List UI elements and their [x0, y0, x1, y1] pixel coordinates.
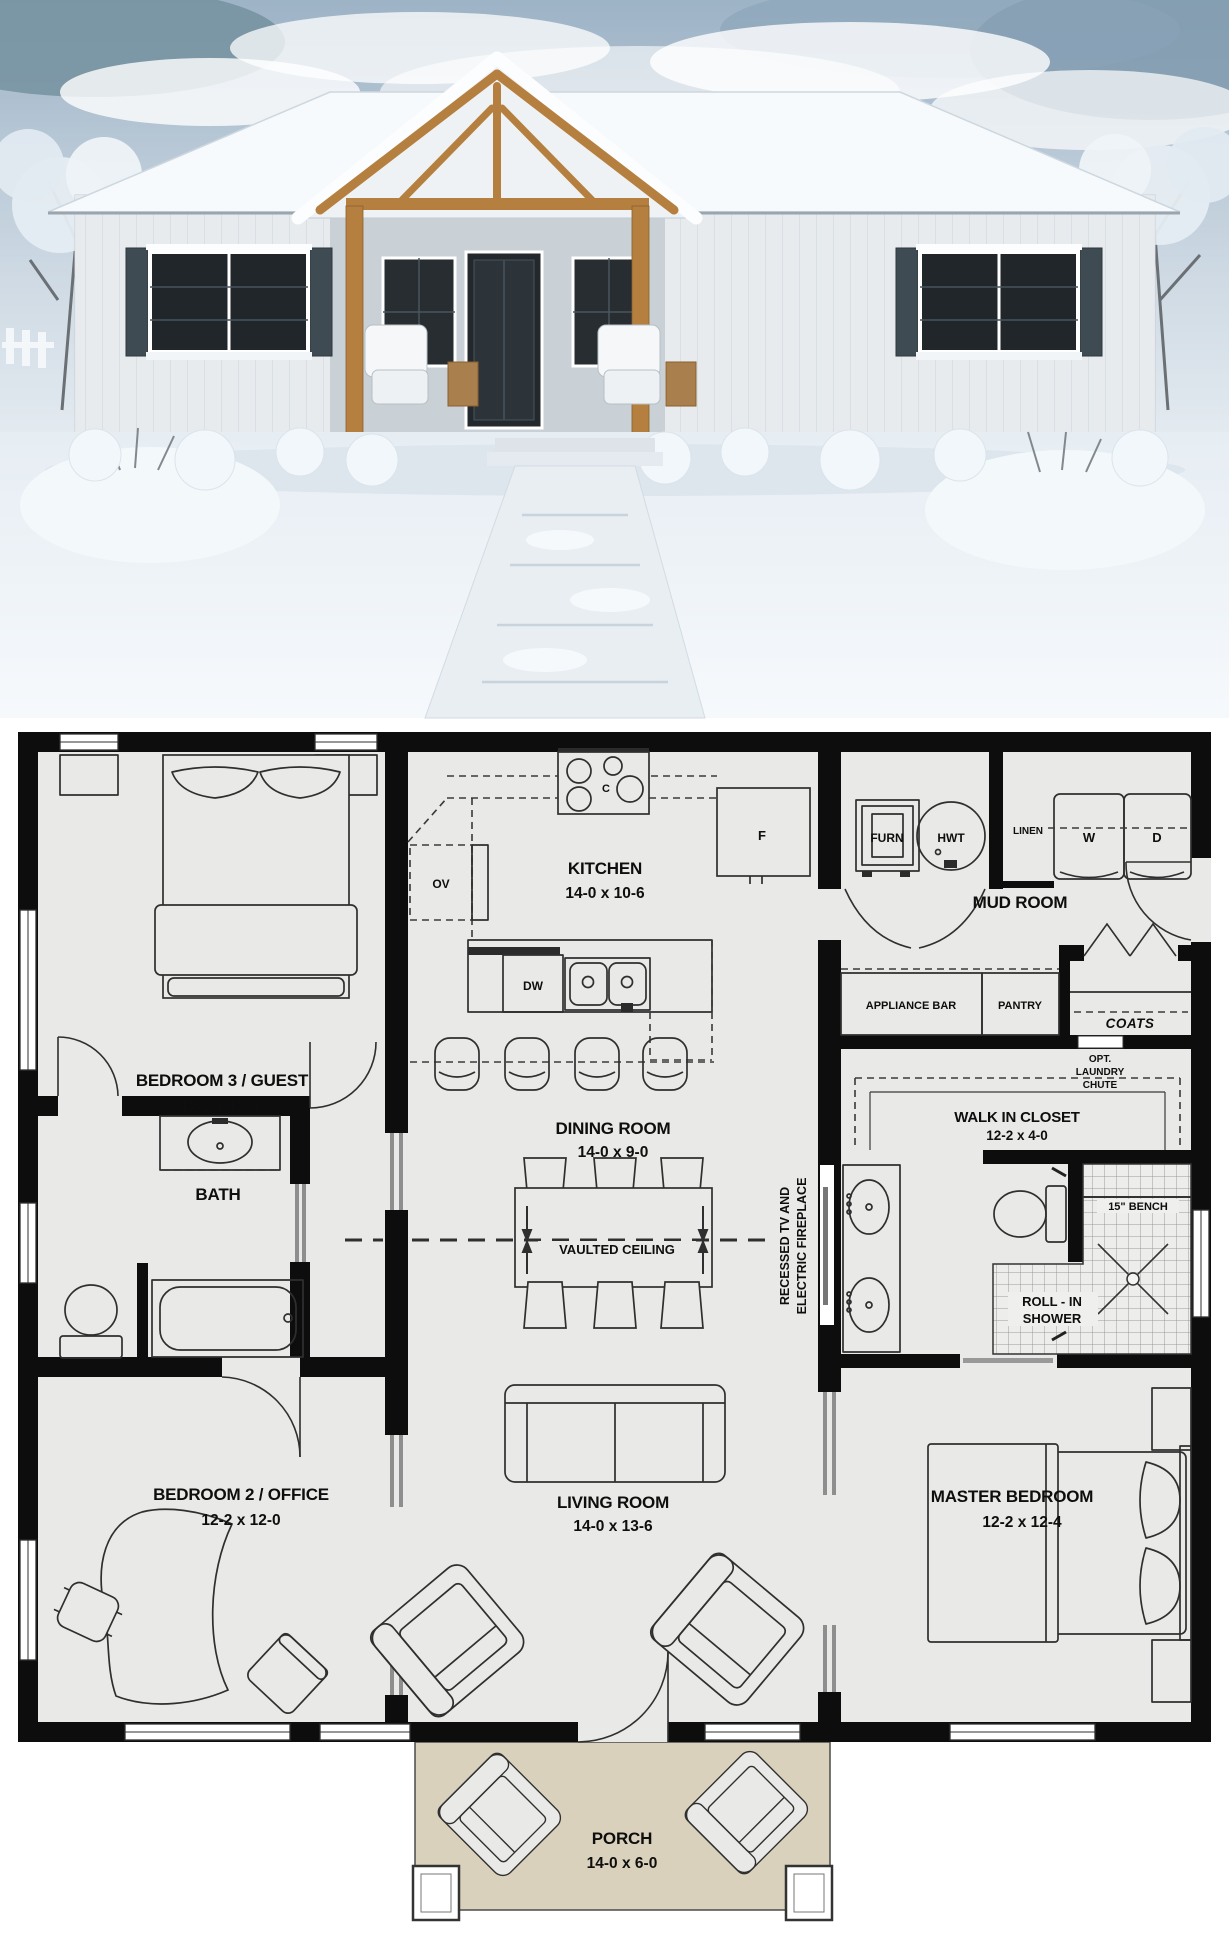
- walkin-closet-dims: 12-2 x 4-0: [986, 1128, 1048, 1143]
- bath-label: BATH: [195, 1185, 240, 1204]
- furnace-label: FURN: [870, 831, 903, 845]
- shower-drain: [1127, 1273, 1139, 1285]
- desk: [101, 1509, 232, 1704]
- adirondack-chair-right: [598, 325, 660, 404]
- window-right: [896, 244, 1102, 360]
- kitchen-dims: 14-0 x 10-6: [565, 885, 645, 902]
- side-table-right: [666, 362, 696, 406]
- master-dims: 12-2 x 12-4: [982, 1514, 1062, 1531]
- tv-note-line2: ELECTRIC FIREPLACE: [795, 1178, 809, 1315]
- bedroom3-dims: 12-2 x 12-0: [180, 1099, 259, 1116]
- bedroom2-dims: 12-2 x 12-0: [201, 1512, 280, 1529]
- vaulted-ceiling-note: VAULTED CEILING: [559, 1242, 675, 1257]
- mudroom-label: MUD ROOM: [973, 893, 1068, 912]
- linen-label: LINEN: [1013, 826, 1043, 837]
- chute-note-1: OPT.: [1089, 1054, 1111, 1065]
- adirondack-chair-left: [365, 325, 428, 404]
- bedroom2-label: BEDROOM 2 / OFFICE: [153, 1485, 329, 1504]
- coats-label: COATS: [1106, 1016, 1155, 1031]
- laundry-chute-opening: [1078, 1036, 1123, 1048]
- chute-note-3: CHUTE: [1083, 1080, 1118, 1091]
- dishwasher-label: DW: [523, 979, 544, 993]
- side-table-left: [448, 362, 478, 406]
- dining-table: [515, 1188, 712, 1287]
- dining-dims: 14-0 x 9-0: [578, 1144, 649, 1161]
- porch-dims: 14-0 x 6-0: [587, 1855, 658, 1872]
- kitchen-label: KITCHEN: [568, 859, 642, 878]
- tv-icon: [823, 1187, 828, 1305]
- dryer-label: D: [1152, 830, 1161, 845]
- exterior-photo: [0, 0, 1229, 718]
- dining-label: DINING ROOM: [556, 1119, 671, 1138]
- porch-label: PORCH: [592, 1829, 652, 1848]
- house-plan-sheet: BEDROOM 3 / GUEST 12-2 x 12-0 BATH BEDRO…: [0, 0, 1229, 1945]
- back-door-opening: [1191, 858, 1211, 942]
- shower-note-2: SHOWER: [1023, 1311, 1082, 1326]
- pantry-label: PANTRY: [998, 1000, 1043, 1012]
- washer-label: W: [1083, 830, 1096, 845]
- living-dims: 14-0 x 13-6: [573, 1518, 653, 1535]
- appliance-bar-label: APPLIANCE BAR: [866, 1000, 957, 1012]
- bedroom3-label: BEDROOM 3 / GUEST: [136, 1071, 309, 1090]
- chute-note-2: LAUNDRY: [1076, 1067, 1125, 1078]
- shower-threshold: [963, 1358, 1053, 1363]
- dining-chairs-bottom: [524, 1282, 703, 1328]
- master-label: MASTER BEDROOM: [931, 1487, 1094, 1506]
- front-door-opening: [578, 1722, 668, 1742]
- window-left: [126, 244, 332, 360]
- shower-note-1: ROLL - IN: [1022, 1294, 1082, 1309]
- bed-queen: [155, 755, 357, 998]
- floorplan: BEDROOM 3 / GUEST 12-2 x 12-0 BATH BEDRO…: [18, 732, 1211, 1920]
- fridge-label: F: [758, 828, 766, 843]
- sofa: [505, 1385, 725, 1482]
- oven-label: OV: [432, 877, 449, 891]
- walkin-closet-label: WALK IN CLOSET: [954, 1109, 1080, 1126]
- water-heater-label: HWT: [937, 831, 965, 845]
- cooktop-label: C: [602, 783, 610, 795]
- tv-note-line1: RECESSED TV AND: [778, 1187, 792, 1305]
- porch-header-beam: [346, 198, 649, 210]
- master-bed: [928, 1444, 1191, 1642]
- bench-note: 15" BENCH: [1108, 1201, 1168, 1213]
- living-label: LIVING ROOM: [557, 1493, 669, 1512]
